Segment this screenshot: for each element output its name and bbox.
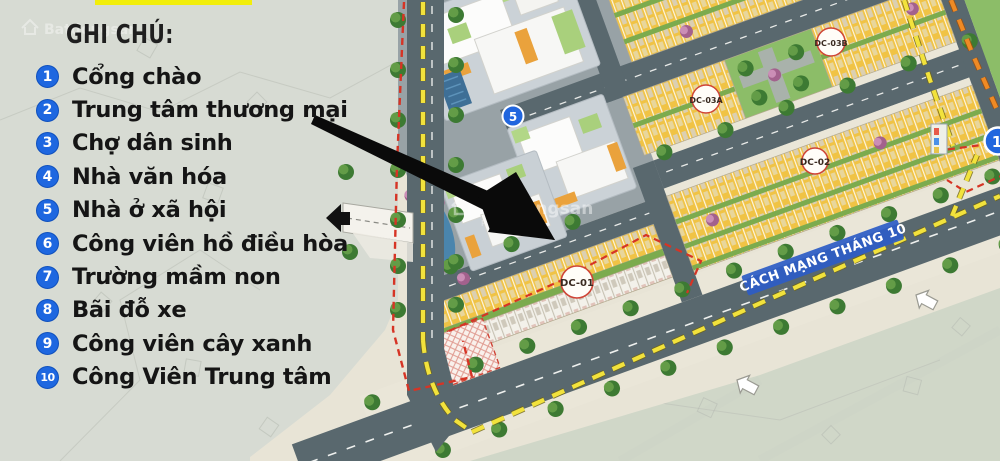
legend-num-badge: 8	[36, 299, 59, 322]
zone-label-dc01: DC-01	[560, 278, 594, 289]
legend-item-label: Cổng chào	[72, 64, 201, 90]
top-banner-fragment	[95, 0, 252, 5]
legend-item-parking: 8 Bãi đỗ xe	[36, 294, 348, 327]
legend-num-badge: 2	[36, 99, 59, 122]
legend-item-label: Công Viên Trung tâm	[72, 364, 331, 390]
legend-num-badge: 9	[36, 332, 59, 355]
legend-num-badge: 7	[36, 266, 59, 289]
legend-item-gate: 1 Cổng chào	[36, 60, 348, 93]
legend-panel: GHI CHÚ: 1 Cổng chào 2 Trung tâm thương …	[36, 20, 348, 394]
legend-num-badge: 5	[36, 199, 59, 222]
legend-num-badge: 6	[36, 232, 59, 255]
legend-item-label: Trung tâm thương mại	[72, 97, 348, 123]
legend-item-label: Nhà văn hóa	[72, 164, 227, 190]
masterplan-screenshot: CÁCH MẠNG THÁNG 10 DC-01 DC-02 DC-03A DC…	[0, 0, 1000, 461]
gate-building	[931, 124, 947, 154]
marker-5-social-housing: 5	[509, 110, 517, 124]
legend-item-label: Bãi đỗ xe	[72, 297, 186, 323]
zone-label-dc03a: DC-03A	[689, 96, 723, 105]
legend-item-label: Công viên cây xanh	[72, 331, 312, 357]
legend-title: GHI CHÚ:	[66, 20, 286, 50]
legend-item-social-housing: 5 Nhà ở xã hội	[36, 194, 348, 227]
marker-1-gate: 1	[992, 133, 1000, 151]
legend-item-label: Chợ dân sinh	[72, 130, 233, 156]
legend-item-kindergarten: 7 Trường mầm non	[36, 260, 348, 293]
legend-num-badge: 10	[36, 366, 59, 389]
legend-num-badge: 1	[36, 65, 59, 88]
legend-item-central-park: 10 Công Viên Trung tâm	[36, 361, 348, 394]
legend-num-badge: 3	[36, 132, 59, 155]
legend-num-badge: 4	[36, 165, 59, 188]
legend-item-green-park: 9 Công viên cây xanh	[36, 327, 348, 360]
legend-item-label: Trường mầm non	[72, 264, 281, 290]
legend-item-label: Nhà ở xã hội	[72, 197, 226, 223]
legend-item-market: 3 Chợ dân sinh	[36, 127, 348, 160]
legend-item-commercial-center: 2 Trung tâm thương mại	[36, 93, 348, 126]
legend-item-lake-park: 6 Công viên hồ điều hòa	[36, 227, 348, 260]
zone-label-dc03b: DC-03B	[814, 39, 847, 48]
legend-item-cultural-house: 4 Nhà văn hóa	[36, 160, 348, 193]
zone-label-dc02: DC-02	[800, 158, 831, 168]
legend-item-label: Công viên hồ điều hòa	[72, 231, 348, 257]
